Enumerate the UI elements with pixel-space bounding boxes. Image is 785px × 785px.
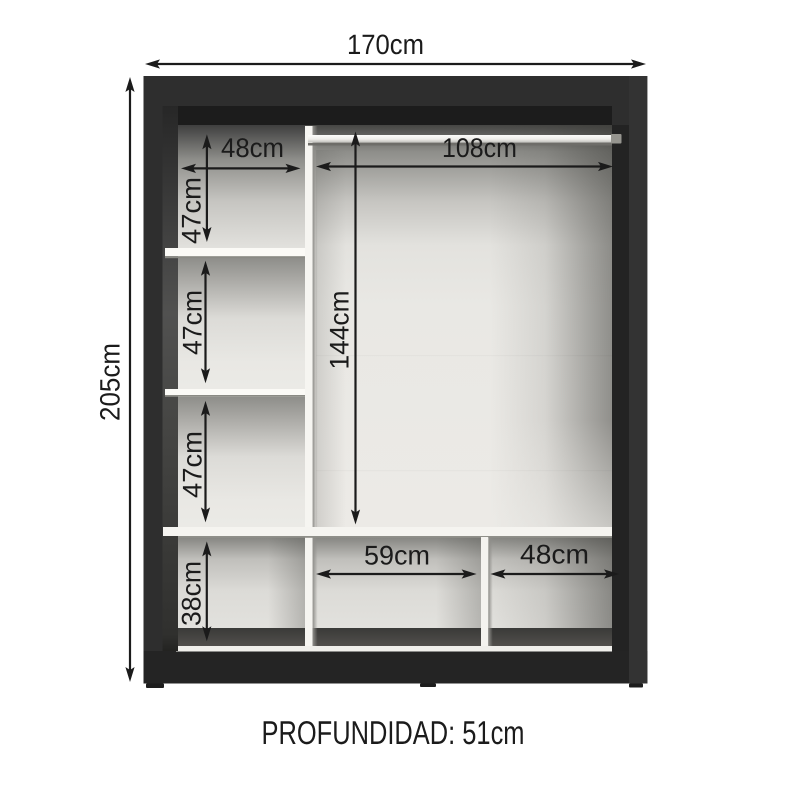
svg-text:144cm: 144cm [325, 291, 355, 370]
svg-text:108cm: 108cm [442, 133, 517, 163]
svg-text:59cm: 59cm [364, 541, 430, 571]
svg-text:47cm: 47cm [177, 177, 207, 244]
svg-text:48cm: 48cm [221, 133, 284, 163]
svg-text:48cm: 48cm [520, 540, 589, 570]
svg-text:PROFUNDIDAD: 51cm: PROFUNDIDAD: 51cm [262, 714, 525, 751]
svg-text:205cm: 205cm [95, 343, 126, 421]
svg-text:170cm: 170cm [347, 29, 424, 60]
svg-text:47cm: 47cm [178, 431, 208, 498]
svg-text:38cm: 38cm [177, 561, 207, 626]
svg-text:47cm: 47cm [178, 290, 208, 355]
